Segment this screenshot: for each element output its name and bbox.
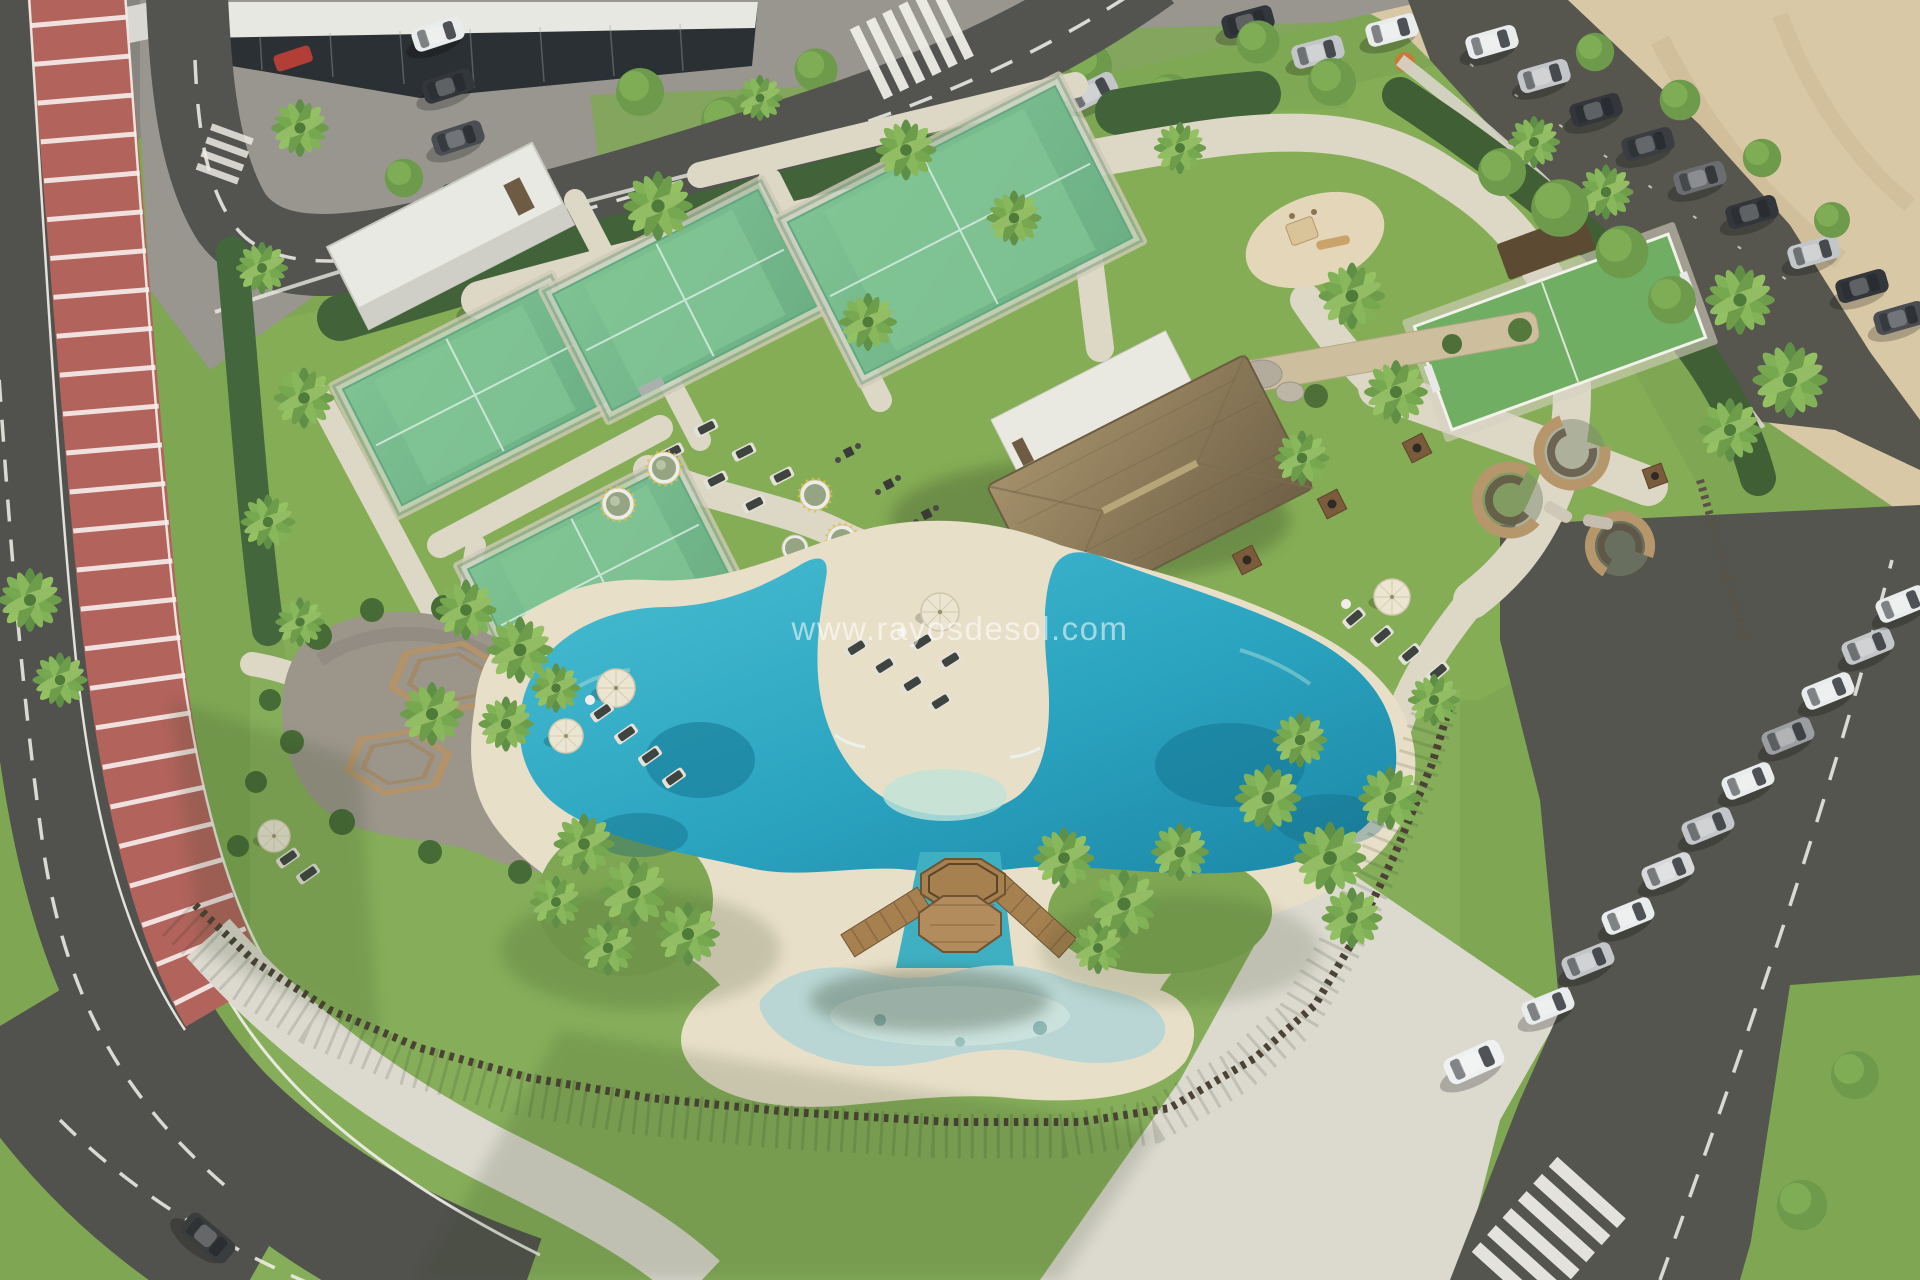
palm-tree — [599, 857, 669, 927]
tree — [1236, 20, 1279, 63]
tree — [1478, 148, 1526, 196]
beach-entry — [883, 769, 1007, 821]
tree — [1308, 58, 1356, 106]
palm-tree — [1154, 122, 1206, 174]
palm-tree — [1274, 430, 1329, 485]
tree — [1576, 33, 1614, 71]
palm-tree — [1072, 922, 1124, 974]
palm-tree — [554, 814, 615, 875]
tree — [1831, 1051, 1879, 1099]
palm-tree — [1272, 712, 1327, 767]
palm-tree — [1705, 265, 1775, 335]
palm-tree — [986, 190, 1041, 245]
palm-tree — [275, 597, 324, 646]
aerial-resort-photo: www.rayosdesol.com — [0, 0, 1920, 1280]
palm-tree — [1151, 823, 1209, 881]
tree — [1596, 226, 1649, 279]
tree — [616, 68, 664, 116]
palm-tree — [271, 99, 329, 157]
tree — [385, 159, 423, 197]
palm-tree — [737, 75, 783, 121]
palm-tree — [0, 568, 62, 632]
tree — [1531, 179, 1589, 237]
palm-tree — [32, 652, 87, 707]
side-table — [897, 627, 907, 637]
palm-tree — [1319, 263, 1386, 330]
palm-tree — [1752, 342, 1827, 417]
palm-tree — [240, 494, 295, 549]
palm-tree — [1698, 398, 1762, 462]
tree — [1777, 1180, 1827, 1230]
scene-canvas — [0, 0, 1920, 1280]
side-table — [1341, 599, 1351, 609]
palm-tree — [580, 920, 635, 975]
palm-tree — [236, 242, 288, 294]
palm-tree — [436, 580, 497, 641]
side-table — [585, 695, 595, 705]
palm-tree — [274, 368, 335, 429]
palm-tree — [656, 902, 720, 966]
palm-tree — [1235, 765, 1302, 832]
palm-tree — [1294, 822, 1367, 895]
palm-tree — [876, 120, 937, 181]
palm-tree — [1358, 766, 1422, 830]
palm-tree — [1322, 888, 1383, 949]
hedge-north — [1118, 94, 1258, 112]
palm-tree — [839, 293, 897, 351]
palm-tree — [400, 682, 464, 746]
palm-tree — [478, 696, 533, 751]
palm-tree — [1034, 828, 1095, 889]
tree — [1660, 80, 1701, 121]
palm-tree — [1364, 360, 1428, 424]
tree — [1814, 202, 1850, 238]
tree — [1743, 139, 1781, 177]
palm-tree — [623, 171, 693, 241]
palm-tree — [531, 663, 580, 712]
palm-tree — [530, 876, 582, 928]
tree — [1648, 276, 1696, 324]
palm-tree — [1408, 674, 1460, 726]
